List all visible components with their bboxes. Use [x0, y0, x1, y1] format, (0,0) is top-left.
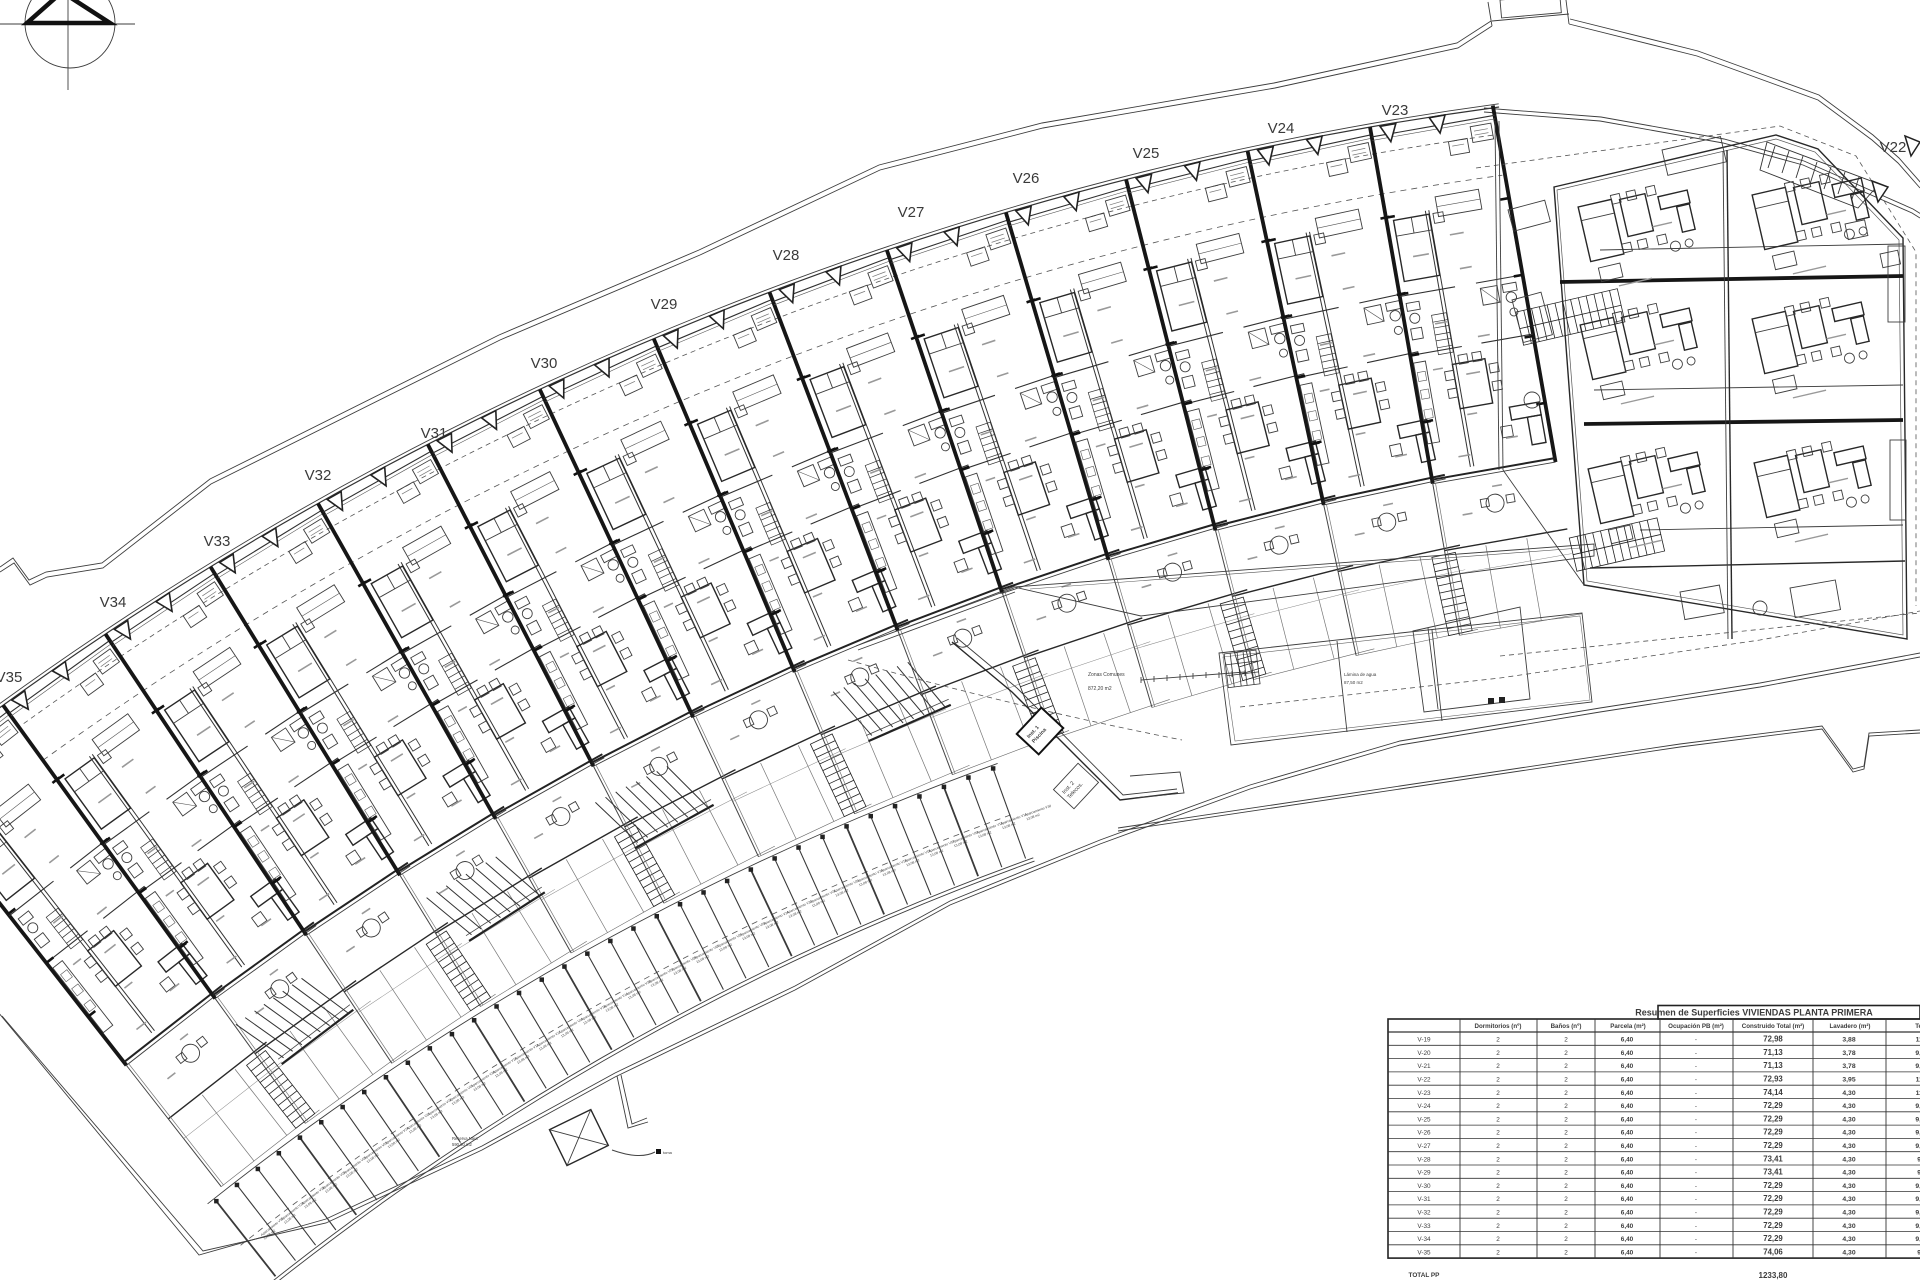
svg-text:V33: V33: [204, 533, 231, 550]
svg-text:-: -: [1695, 1170, 1697, 1177]
svg-text:Baños (nº): Baños (nº): [1551, 1023, 1582, 1030]
svg-text:74,14: 74,14: [1763, 1088, 1783, 1097]
svg-text:71,13: 71,13: [1763, 1061, 1783, 1070]
svg-text:2: 2: [1564, 1249, 1568, 1256]
svg-text:Resumen de Superficies VIVIEND: Resumen de Superficies VIVIENDAS PLANTA …: [1635, 1008, 1873, 1018]
svg-text:2: 2: [1564, 1050, 1568, 1057]
svg-text:2: 2: [1564, 1223, 1568, 1230]
svg-text:2: 2: [1496, 1103, 1500, 1110]
svg-text:9,16: 9,16: [1915, 1063, 1920, 1070]
svg-text:Construido Total (m²): Construido Total (m²): [1742, 1023, 1804, 1030]
svg-text:4,30: 4,30: [1842, 1170, 1855, 1177]
svg-text:6,40: 6,40: [1621, 1223, 1634, 1230]
svg-text:V-19: V-19: [1417, 1037, 1431, 1044]
svg-text:2: 2: [1496, 1249, 1500, 1256]
svg-text:2: 2: [1496, 1077, 1500, 1084]
svg-text:72,29: 72,29: [1763, 1194, 1783, 1203]
svg-text:TOTAL PP: TOTAL PP: [1409, 1272, 1441, 1279]
svg-text:2: 2: [1496, 1130, 1500, 1137]
svg-text:-: -: [1695, 1090, 1697, 1097]
svg-text:6,40: 6,40: [1621, 1143, 1634, 1150]
svg-text:Lámina de agua: Lámina de agua: [1344, 672, 1377, 677]
svg-text:73,41: 73,41: [1763, 1168, 1783, 1177]
svg-text:11,0: 11,0: [1916, 1090, 1920, 1097]
svg-text:V29: V29: [651, 296, 678, 313]
svg-text:6,40: 6,40: [1621, 1050, 1634, 1057]
svg-text:V26: V26: [1013, 170, 1040, 187]
svg-text:V23: V23: [1382, 102, 1409, 119]
svg-text:2: 2: [1564, 1170, 1568, 1177]
svg-text:-: -: [1695, 1063, 1697, 1070]
svg-text:2: 2: [1564, 1210, 1568, 1217]
svg-text:11,0: 11,0: [1916, 1077, 1920, 1084]
svg-text:-: -: [1695, 1116, 1697, 1123]
svg-text:6,40: 6,40: [1621, 1170, 1634, 1177]
svg-text:2: 2: [1564, 1090, 1568, 1097]
svg-text:2: 2: [1496, 1143, 1500, 1150]
svg-text:6,40: 6,40: [1621, 1116, 1634, 1123]
svg-text:V30: V30: [531, 355, 558, 372]
svg-text:V-28: V-28: [1417, 1156, 1431, 1163]
svg-text:-: -: [1695, 1037, 1697, 1044]
svg-text:9,16: 9,16: [1915, 1196, 1920, 1203]
svg-text:V24: V24: [1268, 120, 1295, 137]
svg-text:6,40: 6,40: [1621, 1210, 1634, 1217]
svg-text:V-30: V-30: [1417, 1183, 1431, 1190]
svg-text:Ocupación PB (m²): Ocupación PB (m²): [1668, 1023, 1724, 1030]
svg-text:3,78: 3,78: [1842, 1063, 1855, 1070]
svg-text:2: 2: [1496, 1210, 1500, 1217]
svg-text:2: 2: [1564, 1183, 1568, 1190]
svg-text:6,40: 6,40: [1621, 1196, 1634, 1203]
svg-text:2: 2: [1496, 1183, 1500, 1190]
svg-text:6,40: 6,40: [1621, 1063, 1634, 1070]
svg-text:Terraza: Terraza: [1915, 1023, 1920, 1030]
svg-text:V-27: V-27: [1417, 1143, 1431, 1150]
svg-text:V-29: V-29: [1417, 1170, 1431, 1177]
svg-text:2: 2: [1496, 1116, 1500, 1123]
svg-text:9,16: 9,16: [1915, 1183, 1920, 1190]
svg-text:4,30: 4,30: [1842, 1090, 1855, 1097]
svg-text:V-20: V-20: [1417, 1050, 1431, 1057]
svg-text:11,0: 11,0: [1916, 1037, 1920, 1044]
svg-text:73,41: 73,41: [1763, 1154, 1783, 1163]
svg-text:74,06: 74,06: [1763, 1247, 1783, 1256]
svg-text:2: 2: [1496, 1196, 1500, 1203]
svg-text:2: 2: [1496, 1050, 1500, 1057]
svg-text:V-35: V-35: [1417, 1249, 1431, 1256]
svg-text:6,40: 6,40: [1621, 1090, 1634, 1097]
svg-text:V-24: V-24: [1417, 1103, 1431, 1110]
svg-text:V-23: V-23: [1417, 1090, 1431, 1097]
svg-text:V22: V22: [1880, 139, 1907, 156]
svg-text:4,30: 4,30: [1842, 1196, 1855, 1203]
svg-text:2: 2: [1564, 1130, 1568, 1137]
svg-text:V-34: V-34: [1417, 1236, 1431, 1243]
svg-text:Lavadero (m²): Lavadero (m²): [1830, 1023, 1871, 1030]
svg-text:3,95: 3,95: [1842, 1077, 1855, 1084]
svg-text:-: -: [1695, 1223, 1697, 1230]
svg-text:-: -: [1695, 1103, 1697, 1110]
svg-text:V27: V27: [898, 204, 925, 221]
svg-text:-: -: [1695, 1130, 1697, 1137]
svg-text:9,16: 9,16: [1915, 1103, 1920, 1110]
svg-text:872,20 m2: 872,20 m2: [1088, 686, 1112, 692]
svg-text:-: -: [1695, 1156, 1697, 1163]
svg-text:-: -: [1695, 1210, 1697, 1217]
svg-text:2: 2: [1496, 1063, 1500, 1070]
svg-text:9,16: 9,16: [1915, 1223, 1920, 1230]
svg-text:4,30: 4,30: [1842, 1103, 1855, 1110]
svg-text:V32: V32: [305, 467, 332, 484]
svg-text:9,16: 9,16: [1915, 1116, 1920, 1123]
svg-text:2: 2: [1496, 1236, 1500, 1243]
svg-text:72,29: 72,29: [1763, 1128, 1783, 1137]
svg-text:V34: V34: [100, 594, 127, 611]
svg-text:V-32: V-32: [1417, 1210, 1431, 1217]
svg-text:Zonas Comunes: Zonas Comunes: [1088, 672, 1125, 678]
svg-text:V35: V35: [0, 669, 22, 686]
svg-text:9,16: 9,16: [1915, 1236, 1920, 1243]
svg-text:2: 2: [1496, 1170, 1500, 1177]
svg-text:9,16: 9,16: [1915, 1143, 1920, 1150]
svg-text:V-22: V-22: [1417, 1077, 1431, 1084]
svg-text:4,30: 4,30: [1842, 1156, 1855, 1163]
svg-text:71,13: 71,13: [1763, 1048, 1783, 1057]
svg-text:72,29: 72,29: [1763, 1141, 1783, 1150]
svg-text:2: 2: [1496, 1090, 1500, 1097]
svg-text:4,30: 4,30: [1842, 1183, 1855, 1190]
svg-text:V-31: V-31: [1417, 1196, 1431, 1203]
svg-text:Parcela (m²): Parcela (m²): [1610, 1023, 1645, 1030]
svg-text:72,93: 72,93: [1763, 1075, 1783, 1084]
svg-text:3,88: 3,88: [1842, 1037, 1855, 1044]
svg-text:9,16: 9,16: [1915, 1210, 1920, 1217]
svg-text:4,30: 4,30: [1842, 1116, 1855, 1123]
svg-text:V-26: V-26: [1417, 1130, 1431, 1137]
svg-text:-: -: [1695, 1196, 1697, 1203]
svg-text:72,29: 72,29: [1763, 1208, 1783, 1217]
svg-text:2: 2: [1564, 1236, 1568, 1243]
svg-text:6,40: 6,40: [1621, 1037, 1634, 1044]
svg-text:590,60 m2: 590,60 m2: [452, 1142, 472, 1147]
svg-text:4,30: 4,30: [1842, 1236, 1855, 1243]
svg-text:72,29: 72,29: [1763, 1234, 1783, 1243]
svg-text:2: 2: [1564, 1077, 1568, 1084]
svg-text:6,40: 6,40: [1621, 1236, 1634, 1243]
svg-text:72,29: 72,29: [1763, 1101, 1783, 1110]
svg-text:1233,80: 1233,80: [1759, 1271, 1788, 1280]
svg-text:2: 2: [1564, 1037, 1568, 1044]
svg-text:4,30: 4,30: [1842, 1130, 1855, 1137]
svg-text:Dormitorios (nº): Dormitorios (nº): [1475, 1023, 1522, 1030]
svg-text:6,40: 6,40: [1621, 1103, 1634, 1110]
svg-text:-: -: [1695, 1077, 1697, 1084]
svg-text:2: 2: [1496, 1156, 1500, 1163]
svg-text:6,40: 6,40: [1621, 1183, 1634, 1190]
svg-text:9,16: 9,16: [1915, 1050, 1920, 1057]
svg-text:72,29: 72,29: [1763, 1221, 1783, 1230]
svg-text:4,30: 4,30: [1842, 1223, 1855, 1230]
svg-text:-: -: [1695, 1143, 1697, 1150]
svg-text:2: 2: [1496, 1223, 1500, 1230]
svg-text:2: 2: [1564, 1156, 1568, 1163]
svg-text:V25: V25: [1133, 145, 1160, 162]
svg-text:6,40: 6,40: [1621, 1077, 1634, 1084]
svg-text:2: 2: [1564, 1063, 1568, 1070]
svg-text:72,29: 72,29: [1763, 1114, 1783, 1123]
svg-text:V28: V28: [773, 247, 800, 264]
svg-text:6,40: 6,40: [1621, 1130, 1634, 1137]
svg-text:6,40: 6,40: [1621, 1249, 1634, 1256]
svg-text:6,40: 6,40: [1621, 1156, 1634, 1163]
svg-text:4,30: 4,30: [1842, 1143, 1855, 1150]
svg-text:toma: toma: [663, 1150, 673, 1155]
svg-text:4,30: 4,30: [1842, 1210, 1855, 1217]
svg-text:V-21: V-21: [1417, 1063, 1431, 1070]
svg-text:9,16: 9,16: [1915, 1130, 1920, 1137]
svg-text:2: 2: [1564, 1196, 1568, 1203]
svg-text:87,50 m2: 87,50 m2: [1344, 680, 1363, 685]
svg-text:3,78: 3,78: [1842, 1050, 1855, 1057]
svg-text:V-25: V-25: [1417, 1116, 1431, 1123]
svg-text:-: -: [1695, 1249, 1697, 1256]
svg-text:2: 2: [1564, 1143, 1568, 1150]
svg-text:2: 2: [1496, 1037, 1500, 1044]
svg-text:-: -: [1695, 1236, 1697, 1243]
svg-text:-: -: [1695, 1050, 1697, 1057]
svg-text:-: -: [1695, 1183, 1697, 1190]
svg-text:2: 2: [1564, 1116, 1568, 1123]
svg-text:V-33: V-33: [1417, 1223, 1431, 1230]
svg-text:72,98: 72,98: [1763, 1035, 1783, 1044]
svg-text:2: 2: [1564, 1103, 1568, 1110]
svg-text:72,29: 72,29: [1763, 1181, 1783, 1190]
svg-text:4,30: 4,30: [1842, 1249, 1855, 1256]
svg-text:Reserva Náut: Reserva Náut: [452, 1136, 478, 1141]
